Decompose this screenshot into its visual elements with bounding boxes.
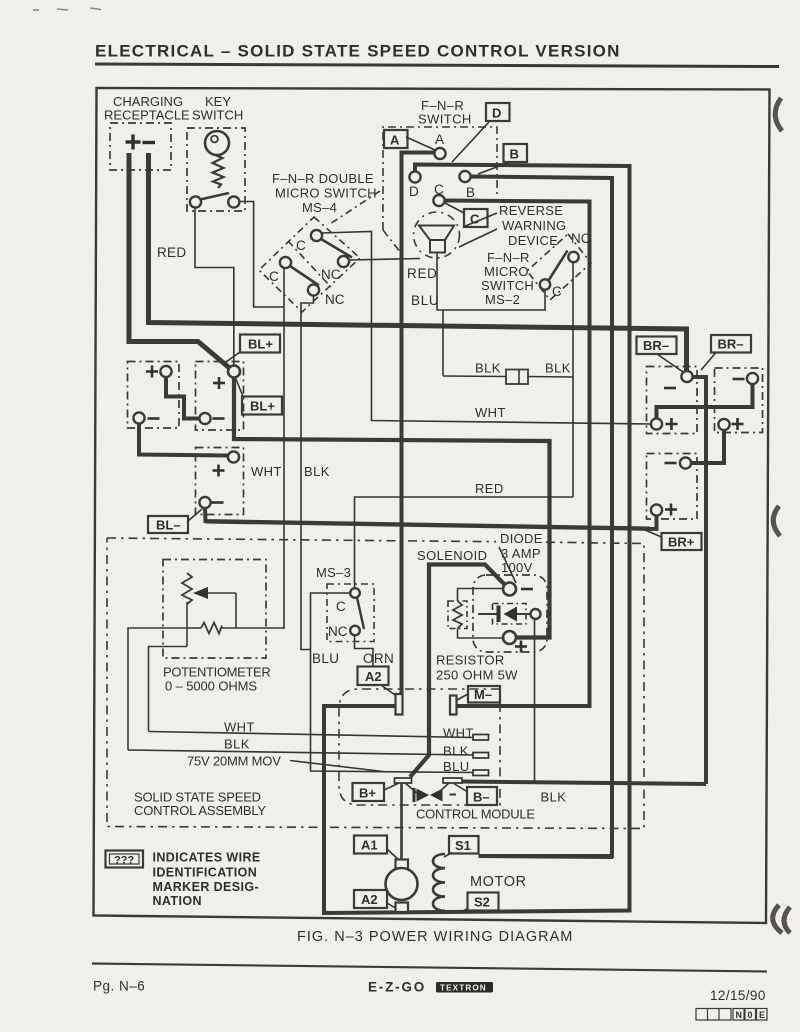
svg-text:C: C [336, 599, 346, 614]
svg-text:S2: S2 [474, 895, 490, 910]
svg-text:INDICATES WIRE: INDICATES WIRE [153, 851, 261, 865]
svg-text:RED: RED [157, 245, 186, 260]
svg-text:BL+: BL+ [250, 399, 275, 414]
svg-text:C: C [552, 284, 562, 299]
svg-text:D: D [409, 184, 419, 199]
svg-text:NC: NC [328, 624, 348, 639]
svg-text:WHT: WHT [251, 464, 282, 479]
svg-text:B–: B– [473, 790, 490, 805]
svg-text:12/15/90: 12/15/90 [710, 988, 766, 1003]
svg-text:WARNING: WARNING [502, 218, 566, 233]
svg-text:C: C [269, 269, 279, 284]
svg-text:F–N–R: F–N–R [487, 250, 530, 265]
svg-text:BLK: BLK [304, 464, 330, 479]
svg-text:A1: A1 [361, 838, 378, 853]
svg-text:RED: RED [407, 266, 438, 281]
svg-text:BLK: BLK [545, 361, 571, 376]
svg-text:DEVICE: DEVICE [508, 233, 558, 248]
svg-text:CONTROL MODULE: CONTROL MODULE [416, 807, 535, 822]
svg-text:B: B [466, 185, 475, 200]
svg-text:BL–: BL– [156, 518, 181, 533]
svg-text:75V 20MM MOV: 75V 20MM MOV [187, 754, 281, 769]
svg-text:BLK: BLK [224, 737, 250, 752]
svg-text:E: E [759, 1010, 765, 1020]
svg-text:BLU: BLU [411, 293, 439, 308]
svg-text:A2: A2 [361, 892, 378, 907]
svg-text:???: ??? [114, 855, 134, 867]
svg-text:MS–3: MS–3 [316, 565, 351, 580]
svg-text:WHT: WHT [475, 405, 506, 420]
svg-text:E-Z-GO: E-Z-GO [368, 980, 426, 995]
svg-text:SOLENOID: SOLENOID [417, 548, 487, 563]
svg-text:WHT: WHT [443, 726, 474, 741]
svg-text:NC: NC [571, 231, 591, 246]
svg-text:ELECTRICAL – SOLID STATE SPEED: ELECTRICAL – SOLID STATE SPEED CONTROL V… [95, 42, 621, 61]
svg-text:D: D [492, 106, 501, 121]
svg-text:RED: RED [475, 481, 504, 496]
svg-text:RECEPTACLE: RECEPTACLE [104, 108, 190, 123]
svg-text:B+: B+ [359, 786, 376, 801]
svg-text:BL+: BL+ [248, 337, 273, 352]
svg-text:BLU: BLU [443, 759, 470, 774]
svg-text:NC: NC [321, 267, 341, 282]
svg-text:BLK: BLK [541, 790, 567, 805]
svg-text:F–N–R DOUBLE: F–N–R DOUBLE [272, 171, 374, 186]
svg-text:SWITCH: SWITCH [481, 278, 534, 293]
svg-text:3 AMP: 3 AMP [501, 546, 541, 561]
svg-text:C: C [296, 238, 306, 253]
svg-text:WHT: WHT [224, 720, 255, 735]
svg-text:MARKER DESIG-: MARKER DESIG- [153, 880, 260, 894]
svg-text:REVERSE: REVERSE [499, 203, 563, 218]
svg-text:MS–4: MS–4 [302, 200, 337, 215]
svg-text:TEXTRON: TEXTRON [440, 984, 487, 993]
svg-text:NATION: NATION [153, 894, 202, 908]
svg-text:FIG. N–3 POWER WIRING DIAGRAM: FIG. N–3 POWER WIRING DIAGRAM [297, 929, 573, 945]
svg-text:A: A [390, 133, 400, 148]
svg-text:DIODE: DIODE [500, 531, 543, 546]
svg-text:BR–: BR– [643, 338, 669, 353]
svg-text:CONTROL ASSEMBLY: CONTROL ASSEMBLY [134, 803, 266, 818]
svg-text:MS–2: MS–2 [485, 292, 520, 307]
svg-text:A: A [435, 132, 444, 147]
svg-text:250 OHM 5W: 250 OHM 5W [436, 668, 518, 683]
svg-text:MOTOR: MOTOR [470, 874, 527, 890]
svg-text:MICRO SWITCH: MICRO SWITCH [275, 186, 377, 201]
svg-text:A2: A2 [365, 669, 382, 684]
svg-text:S1: S1 [455, 838, 471, 853]
svg-text:BLK: BLK [443, 744, 469, 759]
svg-text:BR–: BR– [718, 337, 744, 352]
svg-text:SWITCH: SWITCH [192, 108, 243, 123]
svg-text:NC: NC [325, 292, 345, 307]
svg-text:C: C [434, 182, 444, 197]
svg-text:B: B [510, 147, 519, 162]
svg-text:IDENTIFICATION: IDENTIFICATION [153, 866, 258, 880]
svg-text:POTENTIOMETER: POTENTIOMETER [163, 665, 270, 680]
svg-text:BLK: BLK [475, 361, 501, 376]
svg-text:0: 0 [748, 1010, 753, 1020]
svg-text:MICRO: MICRO [484, 264, 529, 279]
svg-text:BLU: BLU [312, 651, 339, 666]
svg-text:N: N [736, 1010, 743, 1020]
svg-text:ORN: ORN [363, 651, 394, 666]
svg-text:BR+: BR+ [668, 535, 695, 550]
svg-text:Pg. N–6: Pg. N–6 [93, 979, 145, 994]
svg-text:SWITCH: SWITCH [418, 112, 472, 127]
svg-text:0 – 5000 OHMS: 0 – 5000 OHMS [165, 679, 257, 694]
svg-text:RESISTOR: RESISTOR [436, 653, 505, 668]
